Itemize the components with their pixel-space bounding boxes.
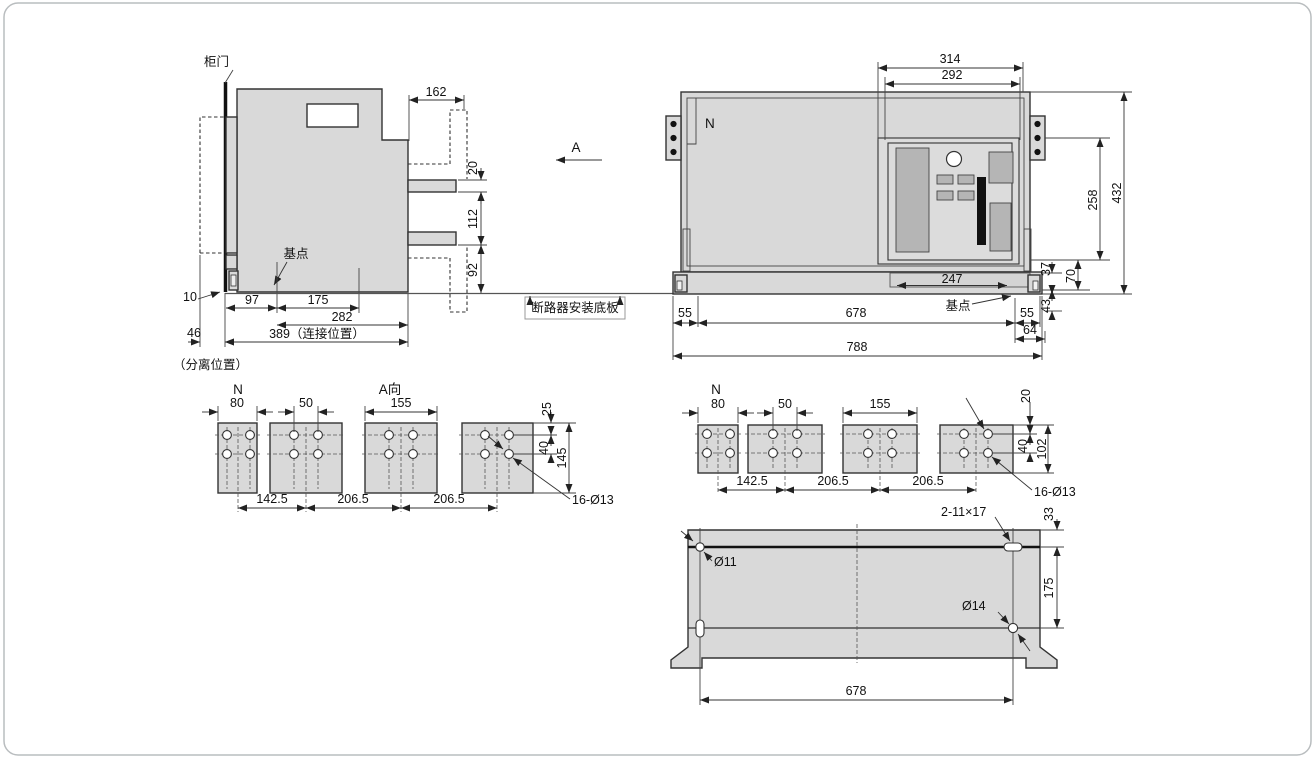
dim-55-left: 55 [678,306,692,320]
dim-292: 292 [942,68,963,82]
dim-432: 432 [1110,183,1124,204]
phase-n-label-pads-left: N [233,382,243,397]
dim-206-5a-front: 206.5 [817,474,848,488]
dim-80-front: 80 [711,397,725,411]
dim-20: 20 [466,161,480,175]
drawing-page: 柜门 162 20 112 92 基点 [0,0,1315,759]
dim-97: 97 [245,293,259,307]
baseplate-label: 断路器安装底板 [531,300,619,315]
dim-206-5b-side: 206.5 [433,492,464,506]
base-foot-left [675,275,687,292]
breaker-fascia [226,117,237,253]
pad-plate [462,423,533,493]
dim-80-side: 80 [230,396,244,410]
dim-43: 43 [1039,299,1053,313]
view-a-direction-label: A向 [379,382,402,397]
hole-round-14 [1008,623,1017,632]
dim-155-side: 155 [391,396,412,410]
mounting-plate [671,530,1057,668]
phase-n-label-pads-right: N [711,382,721,397]
dim-37: 37 [1039,262,1053,276]
dim-206-5b-front: 206.5 [912,474,943,488]
hole-14-callout: Ø14 [962,599,986,613]
terminal-bar-bottom [408,232,456,245]
dim-155-front: 155 [870,397,891,411]
baseplate-callout: 断路器安装底板 [525,296,625,319]
hole-round-11 [696,543,704,551]
dim-678-plate: 678 [846,684,867,698]
dim-64: 64 [1023,323,1037,337]
dim-40-front: 40 [1016,439,1030,453]
dim-389-connected: 389（连接位置） [269,326,365,341]
dim-175: 175 [308,293,329,307]
dim-25-side: 25 [540,402,554,416]
dim-282: 282 [332,310,353,324]
bracket-left [666,116,681,160]
dim-33-plate: 33 [1042,507,1056,521]
dim-102-front: 102 [1035,439,1049,460]
dim-678: 678 [846,306,867,320]
base-point-label-side: 基点 [283,247,308,261]
dim-50-side: 50 [299,396,313,410]
dim-314: 314 [940,52,961,66]
hole-11-callout: Ø11 [714,555,737,569]
cabinet-door-label: 柜门 [204,54,229,69]
dim-10: 10 [183,290,197,304]
terminal-bar-top [408,180,456,192]
control-panel [878,138,1019,264]
view-a-label: A [571,140,580,155]
slot-11x17-top [1004,543,1022,551]
base-foot-right [1028,275,1040,292]
base-point-label-front: 基点 [945,299,970,313]
phase-n-label-front: N [705,116,715,131]
dim-142-5-side: 142.5 [256,492,287,506]
bracket-right [1030,116,1045,160]
dim-50-front: 50 [778,397,792,411]
dim-142-5-front: 142.5 [736,474,767,488]
slot-11x17-bottom [696,620,704,637]
dim-247: 247 [942,272,963,286]
holes-callout-front: 16-Ø13 [1034,485,1076,499]
dim-145-side: 145 [555,448,569,469]
dim-92: 92 [466,263,480,277]
breaker-window [307,104,358,127]
dim-112: 112 [466,209,480,229]
panel-button-round [947,152,962,167]
dim-175-plate: 175 [1042,578,1056,599]
separated-position-label: （分离位置） [173,357,248,372]
page-border [4,3,1311,755]
dim-206-5a-side: 206.5 [337,492,368,506]
slot-callout: 2-11×17 [941,505,986,519]
dim-258: 258 [1086,190,1100,211]
dim-788: 788 [847,340,868,354]
dim-20-front: 20 [1019,389,1033,403]
holes-callout-side: 16-Ø13 [572,493,614,507]
dim-46: 46 [187,326,201,340]
panel-nameplate [896,148,929,252]
dim-162: 162 [426,85,447,99]
panel-handle-slot [977,177,986,245]
dim-55-right: 55 [1020,306,1034,320]
dim-70: 70 [1064,269,1078,283]
dim-40-side: 40 [537,441,551,455]
engineering-drawing: 柜门 162 20 112 92 基点 [0,0,1315,759]
